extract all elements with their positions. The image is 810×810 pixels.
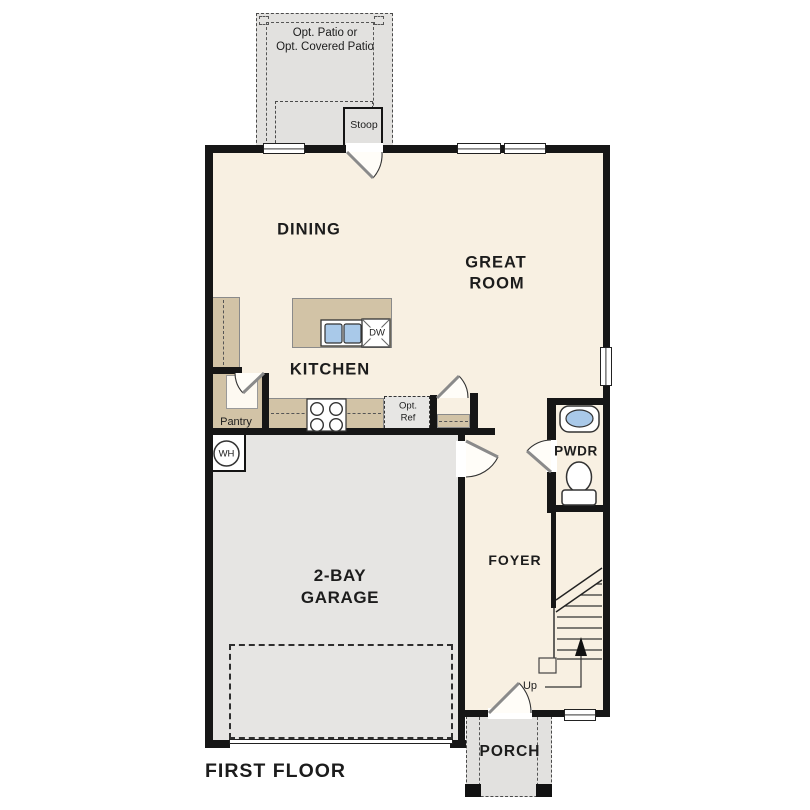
- garage-door-track-outline: [229, 644, 453, 739]
- kitchen-island: [292, 298, 392, 348]
- window-front: [564, 709, 596, 721]
- wall-powder-bottom: [548, 505, 610, 512]
- patio-post-mark-left: [259, 16, 269, 25]
- wall-pantry-stub: [205, 367, 242, 374]
- floor-plan: Opt. Patio or Opt. Covered Patio Stoop P…: [0, 0, 810, 810]
- wall-stair: [551, 512, 556, 608]
- room-label-great-2: ROOM: [469, 275, 524, 294]
- wall-powder-top: [548, 398, 610, 406]
- wall-alcove-right: [470, 393, 478, 428]
- opt-ref-label-line2: Ref: [401, 413, 416, 424]
- patio-label-line1: Opt. Patio or: [293, 27, 358, 39]
- wall-garage-right: [458, 435, 466, 748]
- foyer-floor: [463, 432, 605, 713]
- garage-door: [229, 739, 453, 744]
- room-label-pantry: Pantry: [220, 416, 252, 428]
- wall-alcove-left: [430, 395, 438, 428]
- room-label-great-1: GREAT: [465, 254, 527, 273]
- porch-label: PORCH: [480, 743, 541, 761]
- room-label-garage-1: 2-BAY: [314, 566, 366, 586]
- window-greatroom-1: [457, 143, 501, 154]
- room-label-garage-2: GARAGE: [301, 588, 379, 608]
- wall-left: [205, 145, 213, 748]
- stoop-label: Stoop: [350, 119, 377, 131]
- room-label-kitchen: KITCHEN: [290, 361, 370, 380]
- porch-post-right: [536, 784, 552, 797]
- patio-label-line2: Opt. Covered Patio: [276, 41, 374, 53]
- plan-title: FIRST FLOOR: [205, 760, 346, 783]
- room-label-dining: DINING: [277, 221, 341, 240]
- window-greatroom-2: [504, 143, 546, 154]
- wall-pantry-right: [262, 373, 270, 428]
- label-wh: WH: [219, 448, 235, 459]
- pantry-inner: [226, 375, 258, 409]
- wall-kitchen-garage: [205, 428, 495, 435]
- room-label-powder: PWDR: [554, 444, 598, 459]
- porch-post-left: [465, 784, 481, 797]
- label-up: Up: [523, 680, 537, 692]
- window-right-wall: [600, 347, 612, 386]
- window-dining: [263, 143, 305, 154]
- wall-garage-post-left: [205, 740, 230, 748]
- kitchen-counter: [268, 398, 384, 431]
- alcove-counter: [437, 414, 470, 428]
- room-label-foyer: FOYER: [488, 552, 541, 568]
- pantry-wall-cabinet: [208, 297, 240, 368]
- wall-right: [603, 145, 611, 717]
- main-floor: [210, 150, 605, 435]
- opt-ref-label-line1: Opt.: [399, 401, 417, 412]
- label-dw: DW: [368, 328, 386, 339]
- patio-post-mark-right: [374, 16, 384, 25]
